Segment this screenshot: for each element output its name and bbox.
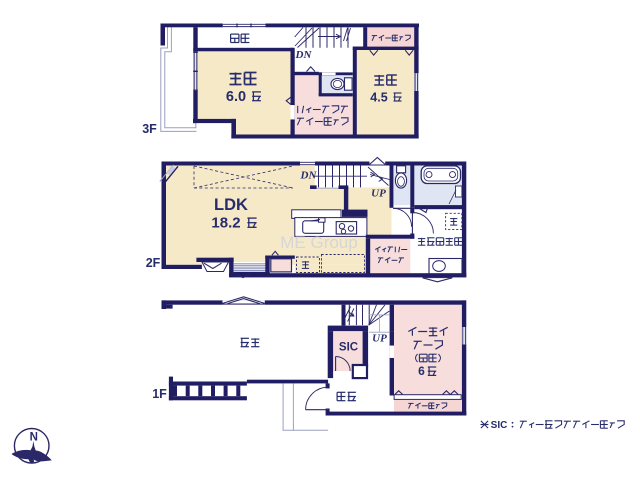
svg-text:2F: 2F xyxy=(146,256,161,270)
svg-text:DN: DN xyxy=(300,170,318,182)
svg-text:UP: UP xyxy=(372,333,387,345)
svg-text:6: 6 xyxy=(418,364,425,378)
svg-text:3F: 3F xyxy=(142,122,157,136)
svg-text:SIC: SIC xyxy=(339,342,358,354)
svg-text:N: N xyxy=(30,432,38,444)
svg-text:LDK: LDK xyxy=(214,196,248,214)
svg-text:SIC: SIC xyxy=(491,420,508,431)
svg-text:6.0: 6.0 xyxy=(226,89,246,105)
svg-text:4.5: 4.5 xyxy=(370,91,387,105)
svg-text:DN: DN xyxy=(295,49,313,61)
svg-text:UP: UP xyxy=(371,188,386,200)
svg-text:1F: 1F xyxy=(152,387,167,401)
svg-text:18.2: 18.2 xyxy=(211,215,240,232)
svg-text:ME Group: ME Group xyxy=(280,233,357,252)
